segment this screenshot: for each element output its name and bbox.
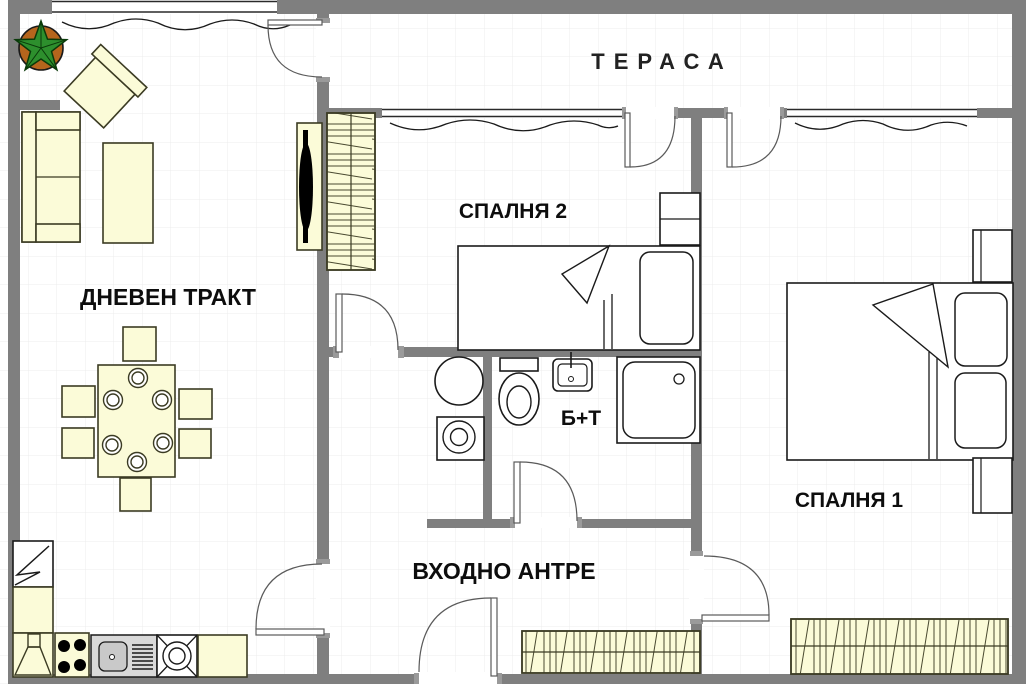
floor-plan: ТЕРАСА СПАЛНЯ 2 ДНЕВЕН ТРАКТ Б+Т ВХОДНО … xyxy=(0,0,1026,684)
sofa xyxy=(22,112,80,242)
bedroom1-nightstand-bottom xyxy=(973,458,1012,513)
chair xyxy=(62,428,94,458)
bedroom1-bed xyxy=(787,283,1013,460)
floor-plan-page: ТЕРАСА СПАЛНЯ 2 ДНЕВЕН ТРАКТ Б+Т ВХОДНО … xyxy=(0,0,1026,684)
bathroom-label: Б+Т xyxy=(561,407,601,430)
pillow xyxy=(640,252,693,344)
chair xyxy=(120,478,151,511)
pillow xyxy=(955,293,1007,366)
drain xyxy=(674,374,684,384)
tv-stand xyxy=(297,123,322,250)
bedroom1-wardrobe xyxy=(791,619,1008,674)
entrance-hall-label: ВХОДНО АНТРЕ xyxy=(412,558,595,584)
coffee-table xyxy=(103,143,153,243)
bedroom2-bed xyxy=(458,246,700,350)
fridge xyxy=(13,541,53,587)
bedroom2-label: СПАЛНЯ 2 xyxy=(459,200,567,223)
washing-machine xyxy=(437,417,484,460)
chair xyxy=(179,429,211,458)
chair xyxy=(179,389,212,419)
bedroom1-nightstand-top xyxy=(973,230,1012,282)
terrace-label: ТЕРАСА xyxy=(591,49,732,74)
dishwasher xyxy=(157,635,197,677)
chair xyxy=(62,386,95,417)
boiler xyxy=(435,357,483,405)
cooker-hood xyxy=(13,633,53,677)
toilet xyxy=(499,358,539,425)
living-room-label: ДНЕВЕН ТРАКТ xyxy=(80,284,256,310)
stove xyxy=(55,633,89,677)
pillow xyxy=(955,373,1006,448)
bedroom2-wardrobe xyxy=(327,113,375,270)
kitchen-counter xyxy=(198,635,247,677)
hall-wardrobe xyxy=(522,631,700,673)
kitchen-cabinet xyxy=(13,587,53,633)
kitchen-sink xyxy=(91,635,157,677)
chair xyxy=(123,327,156,361)
bedroom2-nightstand xyxy=(660,193,700,245)
bedroom1-label: СПАЛНЯ 1 xyxy=(795,489,904,512)
shower-cabin xyxy=(617,357,700,443)
